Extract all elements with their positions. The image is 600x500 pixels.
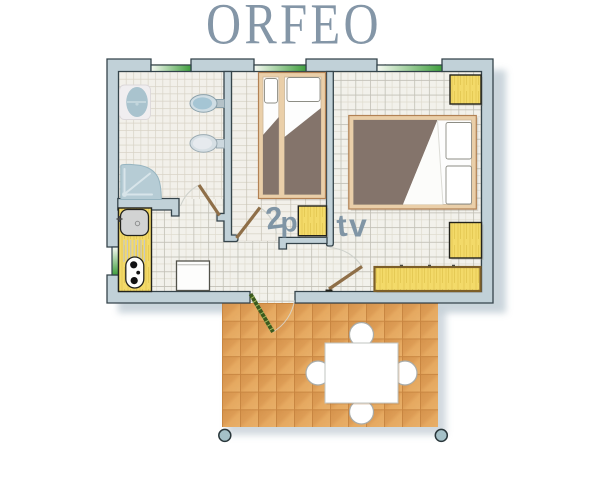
svg-text:ORFEO: ORFEO [206, 0, 382, 57]
svg-text:v: v [349, 208, 367, 244]
svg-text:p: p [281, 207, 298, 238]
